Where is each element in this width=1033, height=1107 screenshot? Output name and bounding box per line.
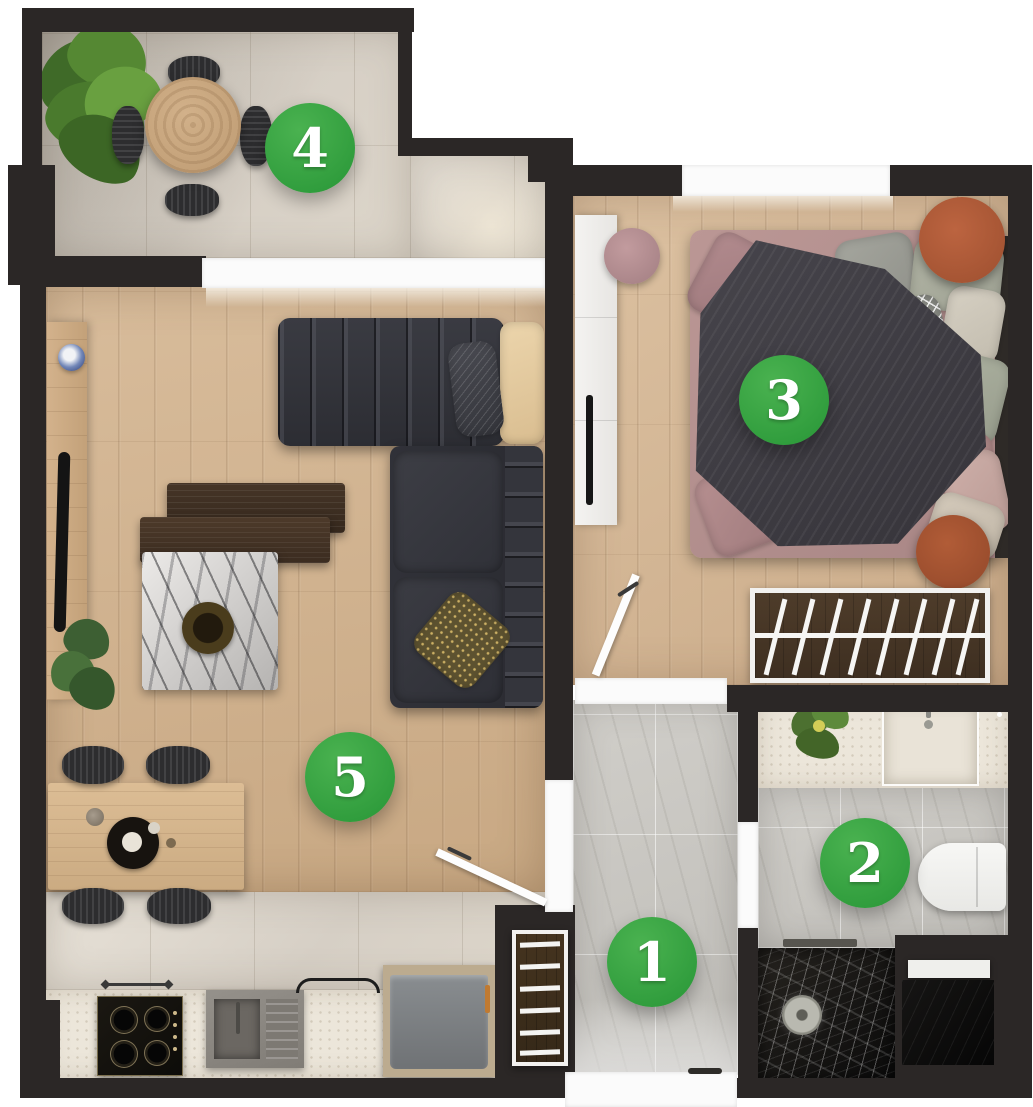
dining-plate <box>122 832 142 852</box>
bedroom-window <box>682 165 890 196</box>
measure-arrow <box>104 983 170 986</box>
bathroom-closet <box>902 980 994 1065</box>
hanger-rail <box>755 633 985 638</box>
dining-chair <box>146 746 210 784</box>
wardrobe-seam <box>575 420 617 421</box>
wardrobe-tv <box>586 395 593 505</box>
balcony-chair-left <box>112 106 144 164</box>
balcony-chair-bottom <box>165 184 219 216</box>
nightstand-bottom <box>916 515 990 589</box>
dishwasher-handle <box>485 985 490 1013</box>
nightstand-top <box>919 197 1005 283</box>
entrance-door <box>565 1072 737 1107</box>
dining-chair <box>147 888 211 924</box>
sink-drain <box>924 720 933 729</box>
teapot <box>86 808 104 826</box>
room-marker-3-number: 3 <box>765 373 803 427</box>
ladder-rung <box>520 941 560 947</box>
sofa-back-strip <box>505 446 543 708</box>
living-window-glow <box>206 287 545 307</box>
room-marker-3: 3 <box>739 355 829 445</box>
toilet-tank-line <box>976 847 978 907</box>
bathroom-shelf <box>908 960 990 978</box>
wardrobe-seam <box>575 317 617 318</box>
ladder-rung <box>520 1007 560 1013</box>
wall-balcony-left <box>22 8 42 170</box>
kitchen-sink <box>206 990 304 1068</box>
wall-right <box>1008 165 1032 1095</box>
room-marker-4: 4 <box>265 103 355 193</box>
burner <box>144 1040 170 1066</box>
stove-knob <box>173 1023 177 1027</box>
ladder-rung <box>520 963 560 969</box>
entry-ladder-rack <box>512 930 568 1066</box>
hallway-entrance-glow <box>573 1000 738 1075</box>
wall-bottom-right <box>737 1078 1032 1098</box>
stove-knob <box>173 1047 177 1051</box>
room-marker-2-number: 2 <box>846 836 884 890</box>
balcony-window <box>202 258 545 288</box>
dishwasher-panel <box>390 975 488 1069</box>
floor-plan: 1 2 3 4 5 <box>0 0 1033 1107</box>
vanity-sink <box>882 702 979 786</box>
hanger-rack-wood <box>755 593 985 678</box>
entrance-door-handle <box>688 1068 722 1074</box>
bedroom-hanger-rack <box>750 588 990 683</box>
burner <box>144 1006 170 1032</box>
wall-balcony-step-vertical <box>398 8 412 154</box>
shower-drain <box>782 995 822 1035</box>
faucet <box>236 1002 240 1034</box>
stove-knob <box>173 1035 177 1039</box>
sofa-cushion <box>393 451 503 573</box>
shower-floor <box>758 948 895 1082</box>
wall-living-top <box>46 256 206 287</box>
shower-bar <box>783 939 857 947</box>
wall-bottom-left <box>20 1078 573 1098</box>
hallway-floor <box>573 700 738 1075</box>
toilet <box>918 843 1006 911</box>
decor-vase <box>58 344 85 371</box>
plant-bloom <box>813 720 825 732</box>
ladder-rack-wood <box>516 934 564 1062</box>
bedroom-pouf <box>604 228 660 284</box>
hall-bath-doorway <box>738 822 758 928</box>
dining-chair <box>62 746 124 784</box>
living-hall-doorway <box>545 780 573 912</box>
balcony-extension-glow <box>410 150 545 258</box>
burner <box>110 1040 138 1068</box>
stove-knob <box>173 1011 177 1015</box>
balcony-floor-extension <box>410 150 545 258</box>
ladder-rung <box>520 1029 560 1035</box>
room-marker-1: 1 <box>607 917 697 1007</box>
living-plant <box>48 615 118 709</box>
stove <box>97 996 183 1076</box>
wall-balcony-top <box>22 8 414 32</box>
dining-chair <box>62 888 124 924</box>
room-marker-4-number: 4 <box>291 121 329 175</box>
chaise-pillow-cream <box>500 322 544 444</box>
wall-bedroom-bottom <box>727 685 1008 712</box>
dishwasher <box>383 965 495 1077</box>
wall-left <box>20 280 46 1095</box>
room-marker-2: 2 <box>820 818 910 908</box>
balcony-plant <box>28 22 168 172</box>
snack-bowl <box>166 838 176 848</box>
coffee-table-tray <box>182 602 234 654</box>
room-marker-1-number: 1 <box>633 935 671 989</box>
cup <box>148 822 160 834</box>
room-marker-5: 5 <box>305 732 395 822</box>
ladder-rung <box>520 985 560 991</box>
wall-balcony-step-horizontal <box>398 138 548 156</box>
ladder-rung <box>520 1049 560 1055</box>
pan-handle <box>296 978 380 993</box>
sink-drainboard <box>266 999 298 1059</box>
bedroom-doorway-threshold <box>575 678 727 704</box>
burner <box>110 1006 138 1034</box>
bedroom-window-glow <box>673 196 893 212</box>
balcony-table <box>145 77 241 173</box>
toiletry-dot <box>997 712 1002 717</box>
room-marker-5-number: 5 <box>331 750 369 804</box>
